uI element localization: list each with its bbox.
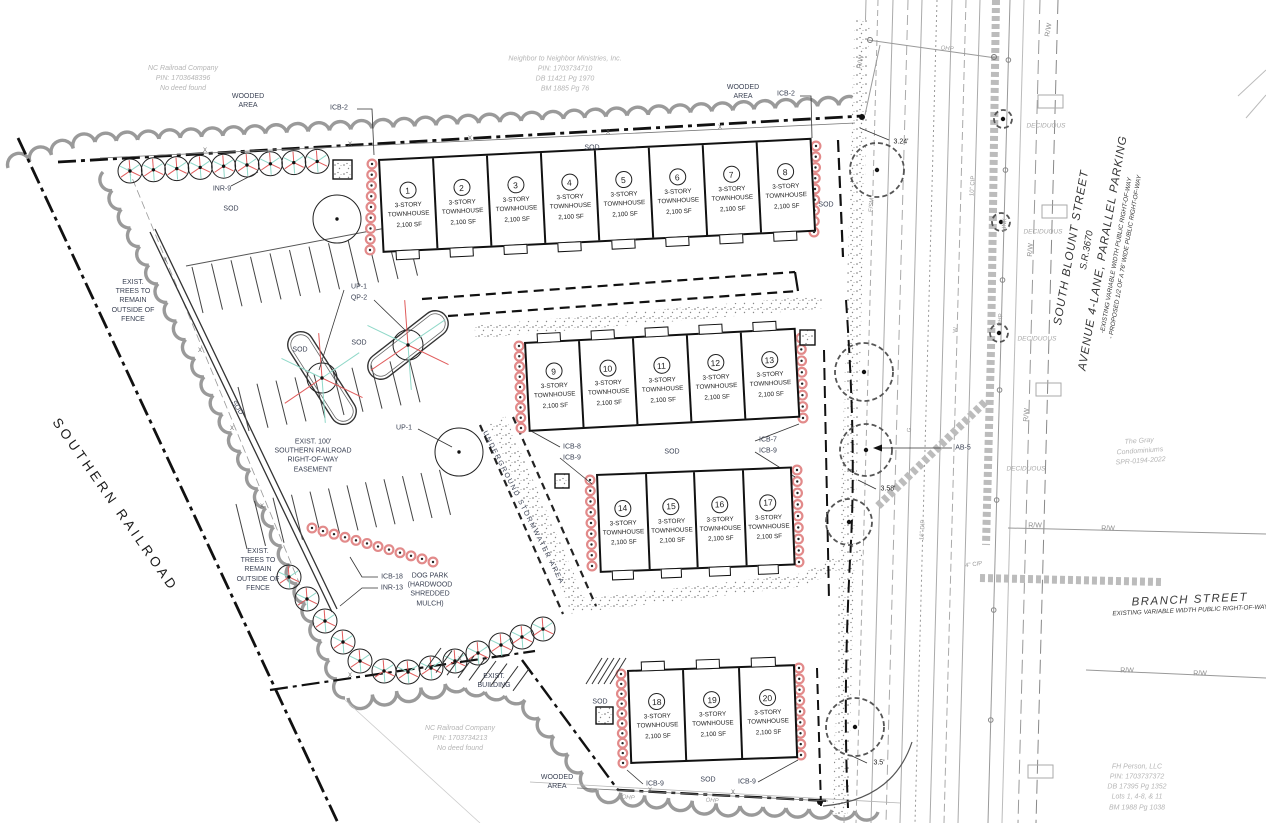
unit-size: 2,100 SF — [756, 729, 782, 738]
unit-number: 2 — [453, 179, 471, 197]
stoop — [699, 324, 723, 335]
unit-number: 6 — [668, 168, 686, 186]
stoop — [696, 659, 721, 670]
unit-number: 20 — [759, 689, 777, 707]
rw-label: R/W — [1193, 669, 1207, 678]
fence-x-mark: X — [163, 258, 167, 266]
townhouse-unit-12: 123-STORYTOWNHOUSE2,100 SF — [688, 333, 746, 422]
unit-type-line: 3-STORY — [756, 371, 783, 380]
stoop — [504, 244, 528, 255]
unit-type-line: 3-STORY — [595, 379, 622, 388]
unit-type-line: 3-STORY — [702, 373, 729, 382]
townhouse-unit-15: 153-STORYTOWNHOUSE2,100 SF — [647, 472, 699, 569]
stoop — [720, 233, 744, 244]
stoop — [591, 329, 615, 340]
ohp-label: OHP — [621, 794, 635, 803]
unit-type-line: TOWNHOUSE — [651, 526, 693, 535]
townhouse-unit-17: 173-STORYTOWNHOUSE2,100 SF — [743, 469, 793, 566]
sod-label: SOD — [584, 143, 599, 152]
unit-number: 15 — [662, 498, 680, 516]
callout-icb8: ICB-8 — [563, 442, 581, 451]
unit-number: 14 — [614, 499, 632, 517]
unit-size: 2,100 SF — [612, 210, 638, 219]
sod-label: SOD — [818, 200, 833, 209]
townhouse-unit-9: 93-STORYTOWNHOUSE2,100 SF — [526, 341, 584, 430]
unit-number: 17 — [759, 494, 777, 512]
wooded-area-label: WOODEDAREA — [541, 773, 573, 791]
unit-number: 13 — [760, 351, 778, 369]
unit-type-line: 3-STORY — [610, 191, 637, 200]
stoop — [753, 321, 777, 332]
utility-label-fsm: F/SM — [869, 198, 878, 213]
unit-size: 2,100 SF — [596, 399, 622, 408]
rw-label: R/W — [1022, 408, 1032, 422]
unit-number: 3 — [507, 176, 525, 194]
parcel-fh-person: FH Person, LLCPIN: 1703737372DB 17395 Pg… — [1107, 763, 1166, 814]
stoop — [612, 239, 636, 250]
callout-ab5: AB-5 — [955, 443, 971, 452]
unit-number: 8 — [776, 163, 794, 181]
unit-type-line: TOWNHOUSE — [692, 719, 734, 728]
unit-number: 7 — [722, 166, 740, 184]
callout-up1: UP-1 — [396, 423, 412, 432]
unit-type-line: TOWNHOUSE — [696, 382, 738, 392]
unit-type-line: TOWNHOUSE — [637, 721, 679, 730]
rw-label: R/W — [1028, 521, 1042, 530]
unit-type-line: 3-STORY — [648, 376, 675, 385]
fence-x-mark: X — [648, 788, 652, 796]
unit-type-line: TOWNHOUSE — [534, 390, 576, 400]
unit-size: 2,100 SF — [704, 393, 730, 402]
unit-size: 2,100 SF — [650, 396, 676, 405]
townhouse-unit-18: 183-STORYTOWNHOUSE2,100 SF — [629, 670, 687, 762]
callout-icb9: ICB-9 — [563, 453, 581, 462]
sod-label: SOD — [592, 697, 607, 706]
fence-x-mark: X — [718, 125, 722, 133]
unit-type-line: 3-STORY — [706, 515, 733, 524]
unit-number: 11 — [652, 357, 670, 375]
parcel-gray-condominiums: The GrayCondominiumsSPR-0194-2022 — [1114, 435, 1166, 469]
wooded-area-label: WOODEDAREA — [232, 92, 264, 110]
site-plan: NC Railroad CompanyPIN: 1703648396No dee… — [0, 0, 1266, 823]
unit-type-line: TOWNHOUSE — [388, 210, 430, 220]
exist-building-note: EXIST.BUILDING — [477, 672, 510, 690]
unit-size: 2,100 SF — [720, 205, 746, 214]
unit-size: 2,100 SF — [756, 533, 782, 542]
townhouse-row-3: 143-STORYTOWNHOUSE2,100 SF153-STORYTOWNH… — [596, 466, 796, 572]
unit-type-line: 3-STORY — [609, 519, 636, 528]
stoop — [757, 564, 779, 575]
utility-label-g: G — [907, 427, 915, 432]
unit-type-line: 3-STORY — [449, 198, 476, 207]
unit-type-line: TOWNHOUSE — [750, 379, 792, 389]
unit-type-line: 3-STORY — [664, 188, 691, 197]
callout-icb7: ICB-7 — [759, 435, 777, 444]
utility-label-link: LINK — [1002, 218, 1011, 232]
townhouse-unit-5: 53-STORYTOWNHOUSE2,100 SF — [596, 148, 654, 241]
callout-icb18: ICB-18 — [381, 572, 403, 581]
fence-x-mark: X — [606, 130, 610, 138]
fence-x-mark: X — [203, 148, 207, 156]
unit-type-line: TOWNHOUSE — [765, 191, 807, 201]
deciduous-label: DECIDUOUS — [1006, 466, 1045, 475]
unit-size: 2,100 SF — [645, 732, 671, 741]
townhouse-unit-16: 163-STORYTOWNHOUSE2,100 SF — [695, 470, 747, 567]
stoop — [666, 236, 690, 247]
unit-type-line: TOWNHOUSE — [700, 524, 742, 533]
fence-x-mark: X — [348, 142, 352, 150]
dimension-label: 3.5' — [873, 758, 884, 767]
callout-inr9: INR-9 — [213, 184, 231, 193]
unit-type-line: TOWNHOUSE — [604, 199, 646, 209]
townhouse-unit-1: 13-STORYTOWNHOUSE2,100 SF — [380, 158, 438, 251]
unit-number: 12 — [706, 354, 724, 372]
callout-icb2: ICB-2 — [777, 89, 795, 98]
stoop — [450, 246, 474, 257]
townhouse-unit-11: 113-STORYTOWNHOUSE2,100 SF — [634, 335, 692, 424]
utility-label-ohp: OHP — [998, 313, 1007, 327]
rw-label: R/W — [1120, 666, 1134, 675]
utility-label-cip10: 10" CIP — [969, 176, 978, 197]
townhouse-unit-7: 73-STORYTOWNHOUSE2,100 SF — [704, 142, 762, 235]
unit-type-line: 3-STORY — [754, 709, 781, 718]
unit-size: 2,100 SF — [542, 402, 568, 411]
callout-up1: UP-1 — [351, 282, 367, 291]
stoop — [751, 657, 776, 668]
rw-label: R/W — [1026, 243, 1036, 257]
townhouse-unit-6: 63-STORYTOWNHOUSE2,100 SF — [650, 145, 708, 238]
townhouse-unit-2: 23-STORYTOWNHOUSE2,100 SF — [434, 156, 492, 249]
townhouse-unit-14: 143-STORYTOWNHOUSE2,100 SF — [598, 474, 650, 571]
railroad-easement-note: EXIST. 100'SOUTHERN RAILROAD RIGHT-OF-WA… — [274, 438, 351, 475]
fence-x-mark: X — [468, 136, 472, 144]
stoop — [396, 249, 420, 260]
stoop — [537, 332, 561, 343]
unit-type-line: 3-STORY — [718, 185, 745, 194]
unit-size: 2,100 SF — [611, 539, 637, 548]
fence-x-mark: X — [230, 426, 234, 434]
unit-number: 5 — [614, 171, 632, 189]
unit-type-line: TOWNHOUSE — [747, 717, 789, 726]
townhouse-unit-20: 203-STORYTOWNHOUSE2,100 SF — [740, 666, 796, 758]
exist-trees-note: EXIST.TREES TOREMAIN OUTSIDE OFFENCE — [112, 278, 155, 324]
unit-type-line: 3-STORY — [395, 201, 422, 210]
callout-icb2: ICB-2 — [330, 103, 348, 112]
callout-inr13: INR-13 — [381, 583, 403, 592]
unit-size: 2,100 SF — [504, 216, 530, 225]
unit-type-line: TOWNHOUSE — [442, 207, 484, 217]
deciduous-label: DECIDUOUS — [1017, 336, 1056, 345]
fence-x-mark: X — [731, 790, 735, 798]
townhouse-row-2: 93-STORYTOWNHOUSE2,100 SF103-STORYTOWNHO… — [524, 328, 800, 432]
parcel-nc-railroad-south: NC Railroad CompanyPIN: 1703734213No dee… — [425, 724, 495, 754]
townhouse-unit-3: 33-STORYTOWNHOUSE2,100 SF — [488, 153, 546, 246]
unit-size: 2,100 SF — [450, 218, 476, 227]
unit-type-line: TOWNHOUSE — [642, 385, 684, 395]
fence-x-mark: X — [458, 657, 462, 665]
callout-qp2: QP-2 — [351, 293, 367, 302]
townhouse-unit-19: 193-STORYTOWNHOUSE2,100 SF — [684, 668, 742, 760]
unit-number: 16 — [711, 496, 729, 514]
unit-size: 2,100 SF — [396, 221, 422, 230]
unit-type-line: TOWNHOUSE — [496, 204, 538, 214]
unit-type-line: 3-STORY — [644, 713, 671, 722]
stoop — [645, 326, 669, 337]
unit-type-line: 3-STORY — [658, 517, 685, 526]
dog-park-note: DOG PARK(HARDWOOD SHREDDEDMULCH) — [408, 572, 453, 609]
unit-type-line: 3-STORY — [556, 193, 583, 202]
unit-size: 2,100 SF — [774, 202, 800, 211]
unit-number: 1 — [399, 181, 417, 199]
unit-size: 2,100 SF — [666, 208, 692, 217]
stoop — [558, 241, 582, 252]
parcel-neighbor-ministries: Neighbor to Neighbor Ministries, Inc.PIN… — [508, 55, 621, 96]
unit-number: 4 — [560, 173, 578, 191]
stoop — [660, 568, 682, 579]
stoop — [709, 566, 731, 577]
fence-x-mark: X — [348, 673, 352, 681]
townhouse-unit-8: 83-STORYTOWNHOUSE2,100 SF — [758, 140, 814, 232]
parcel-nc-railroad-north: NC Railroad CompanyPIN: 1703648396No dee… — [148, 64, 218, 94]
deciduous-label: DECIDUOUS — [1023, 229, 1062, 238]
sod-label: SOD — [292, 345, 307, 354]
dimension-label: 3.58' — [881, 484, 896, 493]
townhouse-unit-10: 103-STORYTOWNHOUSE2,100 SF — [580, 338, 638, 427]
deciduous-label: DECIDUOUS — [1026, 123, 1065, 132]
dimension-label: 3.24' — [894, 137, 909, 146]
unit-type-line: TOWNHOUSE — [550, 202, 592, 212]
unit-number: 19 — [703, 691, 721, 709]
unit-type-line: TOWNHOUSE — [657, 196, 699, 206]
unit-number: 9 — [545, 362, 563, 380]
rw-label: R/W — [1101, 524, 1115, 533]
unit-type-line: 3-STORY — [502, 196, 529, 205]
wooded-area-label: WOODEDAREA — [727, 83, 759, 101]
utility-label-dip16: 16" DIP — [919, 520, 928, 541]
fence-x-mark: X — [198, 348, 202, 356]
exist-trees-note: EXIST.TREES TOREMAIN OUTSIDE OFFENCE — [237, 547, 280, 593]
unit-type-line: TOWNHOUSE — [711, 194, 753, 204]
stoop — [612, 570, 634, 581]
townhouse-unit-4: 43-STORYTOWNHOUSE2,100 SF — [542, 150, 600, 243]
unit-number: 10 — [599, 359, 617, 377]
unit-type-line: 3-STORY — [755, 514, 782, 523]
townhouse-row-4: 183-STORYTOWNHOUSE2,100 SF193-STORYTOWNH… — [627, 664, 798, 764]
townhouse-unit-13: 133-STORYTOWNHOUSE2,100 SF — [742, 330, 798, 419]
unit-number: 18 — [648, 693, 666, 711]
stoop — [640, 661, 665, 672]
unit-size: 2,100 SF — [659, 537, 685, 546]
callout-icb9: ICB-9 — [759, 446, 777, 455]
unit-type-line: TOWNHOUSE — [588, 388, 630, 398]
utility-label-w: W — [953, 327, 961, 333]
unit-type-line: 3-STORY — [699, 711, 726, 720]
ohp-label: OHP — [940, 45, 954, 54]
fence-x-mark: X — [260, 504, 264, 512]
sod-label: SOD — [223, 204, 238, 213]
sod-label: SOD — [351, 338, 366, 347]
ohp-label: OHP — [705, 798, 719, 807]
unit-size: 2,100 SF — [758, 390, 784, 399]
callout-icb9: ICB-9 — [738, 777, 756, 786]
unit-type-line: 3-STORY — [541, 382, 568, 391]
unit-type-line: TOWNHOUSE — [603, 528, 645, 537]
unit-size: 2,100 SF — [700, 731, 726, 740]
sod-label: SOD — [664, 447, 679, 456]
sod-label: SOD — [700, 775, 715, 784]
unit-type-line: TOWNHOUSE — [748, 522, 790, 531]
unit-size: 2,100 SF — [558, 213, 584, 222]
stoop — [773, 231, 797, 242]
unit-type-line: 3-STORY — [772, 183, 799, 192]
unit-size: 2,100 SF — [708, 535, 734, 544]
